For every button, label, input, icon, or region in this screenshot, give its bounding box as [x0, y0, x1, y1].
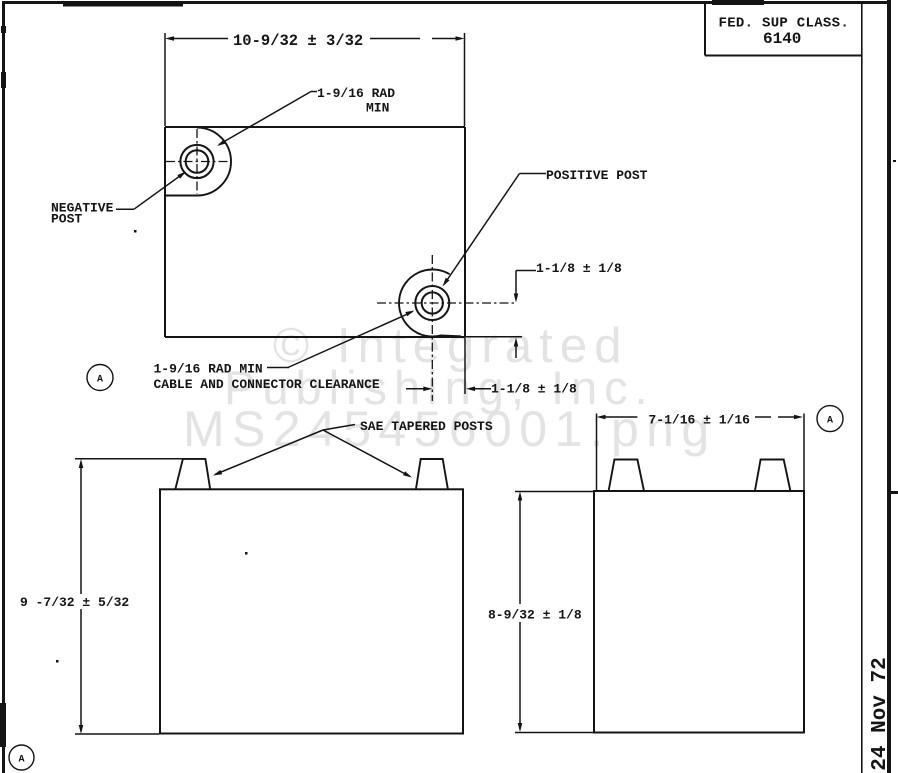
- svg-text:8-9/32 ± 1/8: 8-9/32 ± 1/8: [488, 608, 582, 623]
- svg-text:6140: 6140: [763, 30, 801, 48]
- svg-text:A: A: [827, 416, 833, 427]
- svg-text:1-1/8 ± 1/8: 1-1/8 ± 1/8: [491, 382, 577, 397]
- svg-text:1-1/8 ± 1/8: 1-1/8 ± 1/8: [536, 261, 622, 276]
- svg-text:A: A: [18, 755, 24, 766]
- svg-text:SAE TAPERED POSTS: SAE TAPERED POSTS: [360, 419, 493, 434]
- svg-text:24 Nov 72: 24 Nov 72: [869, 657, 892, 770]
- svg-text:9 -7/32 ± 5/32: 9 -7/32 ± 5/32: [20, 595, 129, 610]
- svg-text:7-1/16 ± 1/16: 7-1/16 ± 1/16: [649, 413, 751, 428]
- svg-text:POST: POST: [51, 212, 82, 227]
- svg-text:MIN: MIN: [366, 101, 389, 116]
- svg-text:1-9/16 RAD: 1-9/16 RAD: [317, 86, 395, 101]
- svg-text:1-9/16 RAD MIN: 1-9/16 RAD MIN: [154, 362, 263, 377]
- svg-text:CABLE AND CONNECTOR CLEARANCE: CABLE AND CONNECTOR CLEARANCE: [154, 377, 380, 392]
- svg-text:10-9/32 ± 3/32: 10-9/32 ± 3/32: [233, 32, 363, 50]
- svg-text:A: A: [97, 375, 103, 386]
- svg-text:POSITIVE POST: POSITIVE POST: [546, 168, 648, 183]
